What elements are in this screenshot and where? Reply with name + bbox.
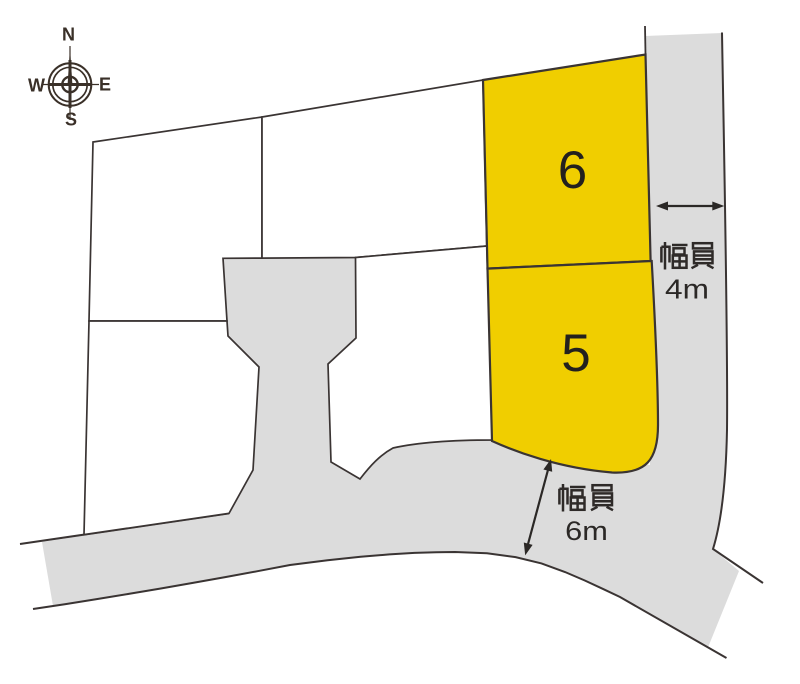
svg-text:W: W (28, 76, 45, 96)
svg-text:6m: 6m (565, 517, 608, 547)
svg-text:E: E (99, 75, 111, 95)
svg-text:4m: 4m (665, 274, 709, 305)
svg-text:S: S (65, 110, 77, 130)
svg-text:5: 5 (561, 324, 590, 383)
svg-text:N: N (62, 25, 75, 45)
svg-text:6: 6 (558, 141, 587, 200)
